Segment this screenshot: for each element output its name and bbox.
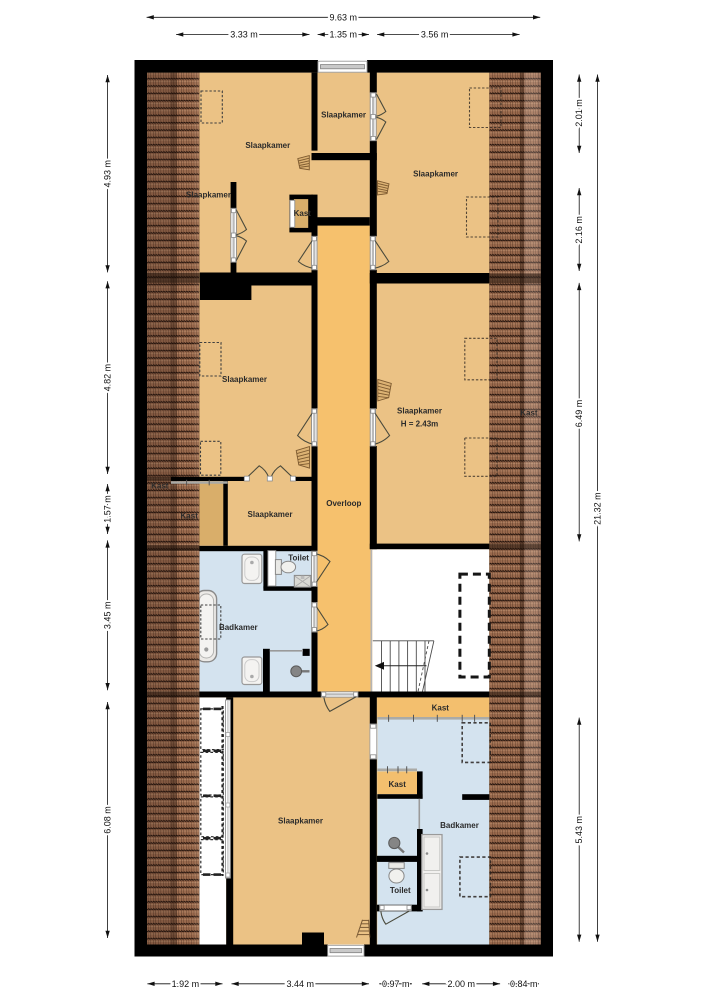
svg-text:0.97 m: 0.97 m <box>382 979 410 989</box>
svg-text:0.84 m: 0.84 m <box>510 979 538 989</box>
svg-text:Kast: Kast <box>294 209 312 218</box>
svg-text:3.44 m: 3.44 m <box>286 979 314 989</box>
svg-text:9.63 m: 9.63 m <box>330 12 358 22</box>
svg-text:Overloop: Overloop <box>326 499 361 508</box>
svg-text:Slaapkamer: Slaapkamer <box>245 141 290 150</box>
svg-text:6.08 m: 6.08 m <box>103 806 113 834</box>
svg-text:3.45 m: 3.45 m <box>103 602 113 630</box>
svg-text:Slaapkamer: Slaapkamer <box>186 191 231 200</box>
svg-text:Slaapkamer: Slaapkamer <box>413 170 458 179</box>
svg-text:Slaapkamer: Slaapkamer <box>248 510 293 519</box>
svg-text:Toilet: Toilet <box>288 553 309 562</box>
svg-text:4.93 m: 4.93 m <box>103 160 113 188</box>
svg-text:1.35 m: 1.35 m <box>330 30 358 40</box>
svg-text:Badkamer: Badkamer <box>440 821 479 830</box>
svg-text:Kast: Kast <box>389 780 407 789</box>
svg-text:Slaapkamer: Slaapkamer <box>321 110 366 119</box>
svg-text:Kast: Kast <box>181 511 199 520</box>
svg-text:1.57 m: 1.57 m <box>103 495 113 523</box>
svg-text:2.00 m: 2.00 m <box>448 979 476 989</box>
svg-text:3.33 m: 3.33 m <box>230 30 258 40</box>
svg-text:Kast: Kast <box>151 481 169 490</box>
svg-text:2.16 m: 2.16 m <box>574 216 584 244</box>
svg-text:2.01 m: 2.01 m <box>574 99 584 127</box>
svg-text:6.49 m: 6.49 m <box>574 400 584 428</box>
svg-text:Slaapkamer: Slaapkamer <box>222 375 267 384</box>
svg-text:21.32 m: 21.32 m <box>593 492 603 525</box>
svg-text:Slaapkamer: Slaapkamer <box>397 406 442 415</box>
svg-text:Toilet: Toilet <box>390 886 411 895</box>
svg-text:Badkamer: Badkamer <box>219 623 258 632</box>
svg-text:3.56 m: 3.56 m <box>421 30 449 40</box>
svg-text:1.92 m: 1.92 m <box>172 979 200 989</box>
svg-text:H = 2.43m: H = 2.43m <box>401 419 439 428</box>
svg-text:Kast: Kast <box>520 408 538 417</box>
svg-text:Slaapkamer: Slaapkamer <box>278 817 323 826</box>
svg-text:5.43 m: 5.43 m <box>574 816 584 844</box>
svg-text:Kast: Kast <box>432 703 450 712</box>
svg-text:4.82 m: 4.82 m <box>103 364 113 392</box>
